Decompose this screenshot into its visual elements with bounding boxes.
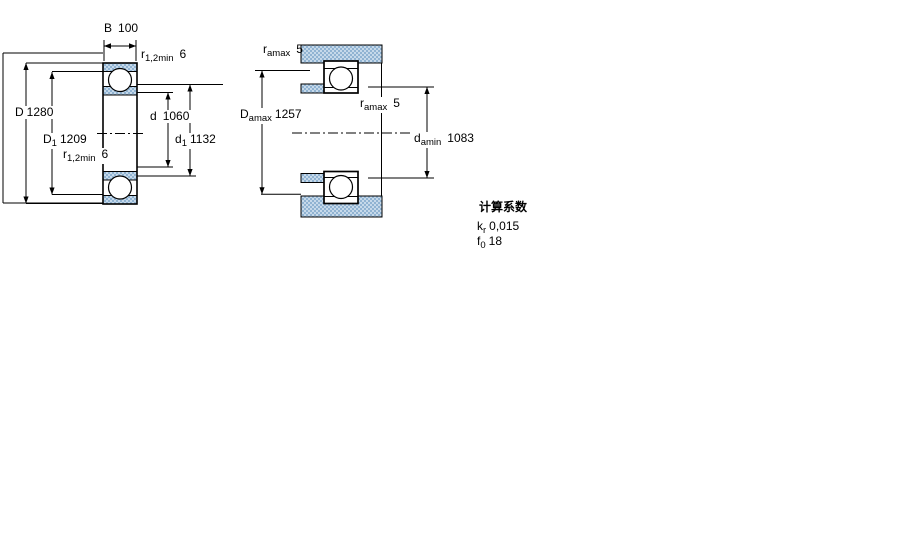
dim-symbol: d xyxy=(175,132,182,146)
label-damin: damin1083 xyxy=(412,132,476,148)
factor-subscript: 0 xyxy=(480,240,485,251)
ball-bottom xyxy=(109,176,132,199)
label-d: d1060 xyxy=(148,110,191,123)
label-ramax-mid: ramax5 xyxy=(358,97,402,113)
dim-value: 6 xyxy=(180,47,187,61)
dim-value: 1257 xyxy=(275,107,302,121)
label-D: D1280 xyxy=(13,106,55,119)
ball-top xyxy=(330,67,353,90)
dim-symbol: D xyxy=(43,132,52,146)
factor-value: 18 xyxy=(489,234,502,248)
dim-value: 100 xyxy=(118,21,138,35)
technical-drawing-canvas xyxy=(0,0,900,560)
dim-subscript: amin xyxy=(421,137,442,148)
shaft-shoulder-bottom xyxy=(301,174,324,183)
label-r12min-top: r1,2min6 xyxy=(139,48,188,64)
dim-value: 1083 xyxy=(447,131,474,145)
dim-value: 1060 xyxy=(163,109,190,123)
dim-value: 5 xyxy=(296,42,303,56)
dim-value: 6 xyxy=(102,147,109,161)
shaft-shoulder-top xyxy=(301,84,324,93)
dim-d1 xyxy=(137,85,223,177)
calculation-factors-title: 计算系数 xyxy=(479,198,527,215)
dim-value: 5 xyxy=(393,96,400,110)
bearing-dimension-drawing: B100 r1,2min6 D1280 D11209 r1,2min6 d106… xyxy=(0,0,900,560)
ball-bottom xyxy=(330,176,353,199)
dim-d xyxy=(137,93,173,168)
dim-symbol: B xyxy=(104,21,112,35)
dim-symbol: d xyxy=(150,109,157,123)
dim-subscript: 1,2min xyxy=(67,153,96,164)
label-B: B100 xyxy=(102,22,140,35)
calc-factor-f0: f018 xyxy=(477,234,502,251)
ball-top xyxy=(109,69,132,92)
dim-symbol: D xyxy=(15,105,24,119)
dim-subscript: 1 xyxy=(52,138,57,149)
dim-subscript: amax xyxy=(364,102,387,113)
label-Damax: Damax1257 xyxy=(238,108,304,124)
label-d1: d11132 xyxy=(173,133,218,149)
mounted-bearing-bottom xyxy=(324,172,358,204)
dim-subscript: 1,2min xyxy=(145,53,174,64)
dim-subscript: amax xyxy=(267,48,290,59)
dim-value: 1209 xyxy=(60,132,87,146)
label-ramax-top: ramax5 xyxy=(261,43,305,59)
dim-value: 1132 xyxy=(190,132,216,146)
dim-subscript: amax xyxy=(249,113,272,124)
dim-B xyxy=(104,40,136,61)
factor-value: 0,015 xyxy=(489,219,519,233)
label-r12min-bottom: r1,2min6 xyxy=(61,148,110,164)
right-mounting-cross-section xyxy=(255,45,438,217)
dim-symbol: D xyxy=(240,107,249,121)
mounted-bearing-top xyxy=(324,61,358,93)
dim-symbol: d xyxy=(414,131,421,145)
dim-value: 1280 xyxy=(27,105,54,119)
dim-subscript: 1 xyxy=(182,138,187,149)
